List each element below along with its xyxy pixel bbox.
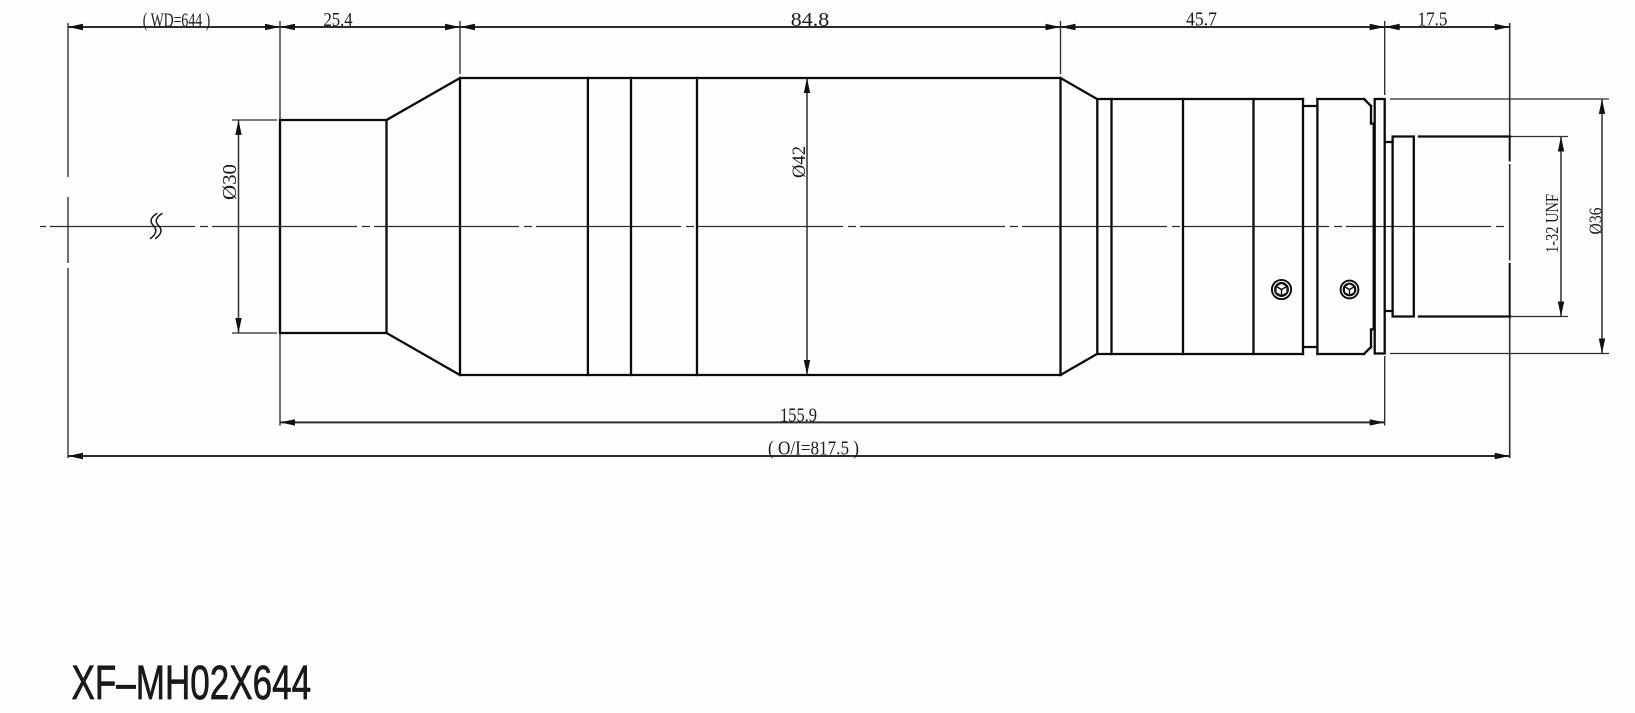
svg-text:Ø42: Ø42 <box>789 146 810 178</box>
svg-text:155.9: 155.9 <box>780 404 817 426</box>
svg-text:84.8: 84.8 <box>791 9 830 31</box>
svg-text:Ø30: Ø30 <box>220 164 241 200</box>
svg-text:25.4: 25.4 <box>324 9 353 31</box>
svg-text:( WD=644 ): ( WD=644 ) <box>143 9 211 31</box>
svg-text:Ø36: Ø36 <box>1586 207 1606 234</box>
svg-text:( O/I=817.5 ): ( O/I=817.5 ) <box>768 437 859 459</box>
svg-text:45.7: 45.7 <box>1186 8 1217 30</box>
svg-text:XF–MH02X644: XF–MH02X644 <box>72 655 312 709</box>
svg-text:17.5: 17.5 <box>1418 8 1448 30</box>
svg-text:1-32 UNF: 1-32 UNF <box>1542 194 1562 253</box>
